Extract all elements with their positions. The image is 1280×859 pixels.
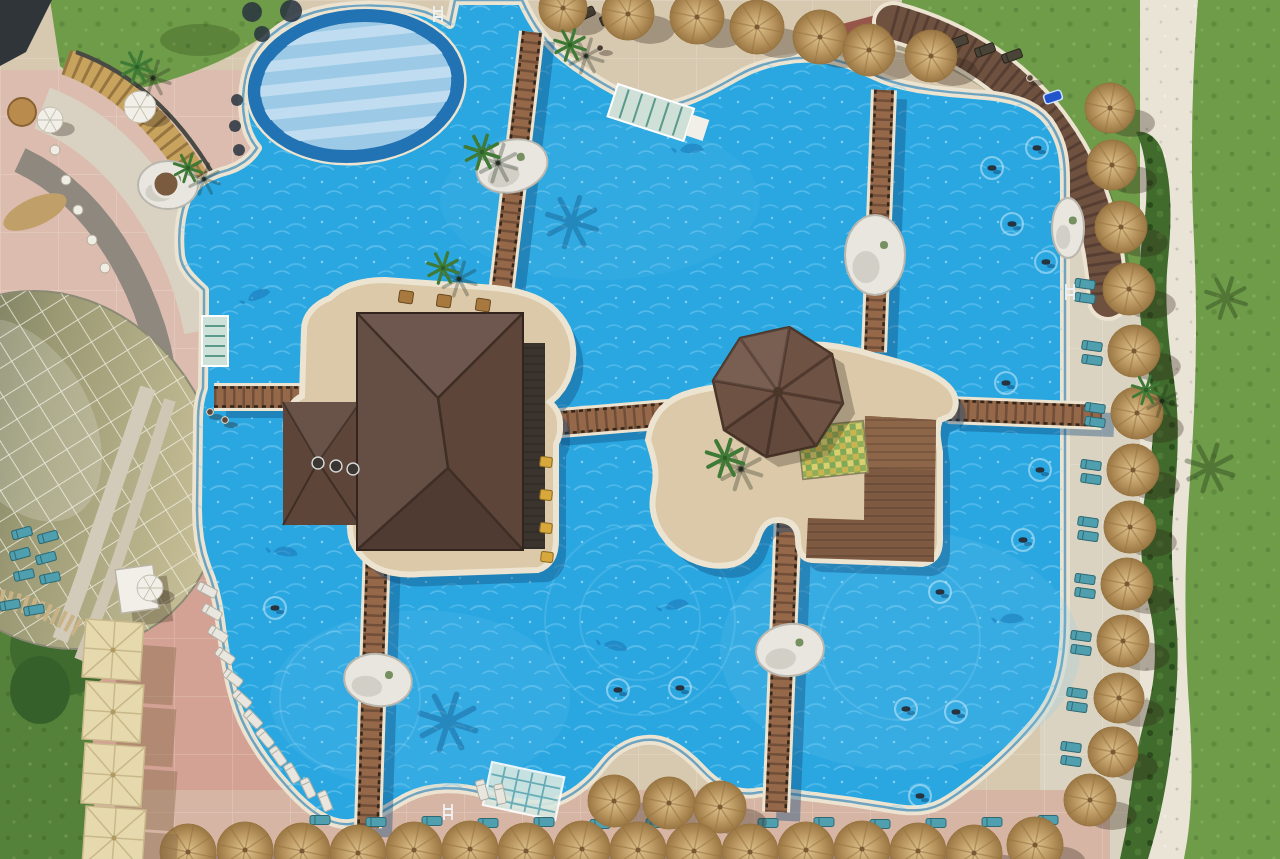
- swimmer-shadow: [1041, 472, 1049, 476]
- bar-stool: [540, 456, 553, 467]
- bush: [242, 2, 262, 22]
- bar-stool: [540, 522, 553, 533]
- swimmer-shadow: [1047, 264, 1055, 268]
- bush: [254, 26, 270, 42]
- bar-stool: [540, 489, 553, 500]
- palm-trunk-top: [1144, 388, 1148, 392]
- pool-stairs-left: [202, 316, 228, 366]
- sun-lounger: [310, 816, 330, 825]
- bridge: [948, 401, 1103, 426]
- person: [222, 417, 229, 424]
- table: [475, 298, 491, 312]
- palm-trunk-top: [568, 43, 572, 47]
- swimmer-shadow: [941, 594, 949, 598]
- bar-stool: [541, 551, 554, 562]
- swimmer-shadow: [1024, 542, 1032, 546]
- swimmer-shadow: [681, 690, 689, 694]
- bar-stool: [312, 457, 324, 469]
- table: [398, 290, 414, 304]
- person: [207, 409, 214, 416]
- terrace-table: [61, 175, 71, 185]
- swimmer-shadow: [993, 170, 1001, 174]
- bush: [233, 144, 245, 156]
- swimmer-shadow: [907, 711, 915, 715]
- palm-trunk-top: [135, 65, 139, 69]
- bar-stool: [347, 463, 359, 475]
- swimmer-shadow: [1013, 226, 1021, 230]
- rock-feature: [1052, 198, 1084, 258]
- swimmer-shadow: [1007, 385, 1015, 389]
- scene-canvas: [0, 0, 1280, 859]
- person: [1027, 75, 1034, 82]
- bush: [231, 94, 243, 106]
- aerial-pool-photo: Aerial drone view of a resort swimming p…: [0, 0, 1280, 859]
- swimmer-shadow: [619, 692, 627, 696]
- terrace-table: [50, 145, 60, 155]
- terrace-table: [73, 205, 83, 215]
- swimmer-shadow: [921, 798, 929, 802]
- palm-trunk-top: [480, 150, 484, 154]
- palm-trunk-top: [186, 166, 190, 170]
- sun-lounger: [366, 818, 386, 827]
- round-table: [8, 98, 36, 126]
- bar-stool: [330, 460, 342, 472]
- terrace-table: [87, 235, 97, 245]
- palm-trunk-top: [723, 456, 727, 460]
- rock-feature: [845, 215, 905, 295]
- table: [436, 294, 452, 308]
- swimmer-shadow: [957, 714, 965, 718]
- terrace-table: [100, 263, 110, 273]
- sun-lounger: [982, 818, 1002, 827]
- swimmer-shadow: [276, 610, 284, 614]
- bush: [229, 120, 241, 132]
- palm-trunk-top: [441, 266, 445, 270]
- bush: [280, 0, 302, 22]
- swimmer-shadow: [1038, 150, 1046, 154]
